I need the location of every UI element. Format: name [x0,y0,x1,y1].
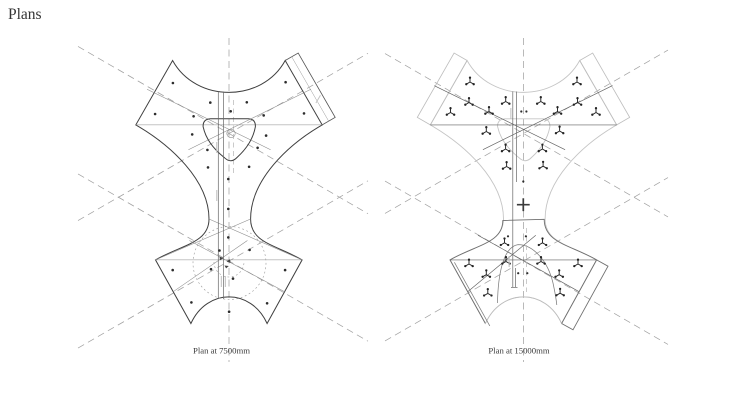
svg-text:Plan at 15000mm: Plan at 15000mm [488,346,550,356]
svg-text:Plan at 7500mm: Plan at 7500mm [193,346,250,356]
